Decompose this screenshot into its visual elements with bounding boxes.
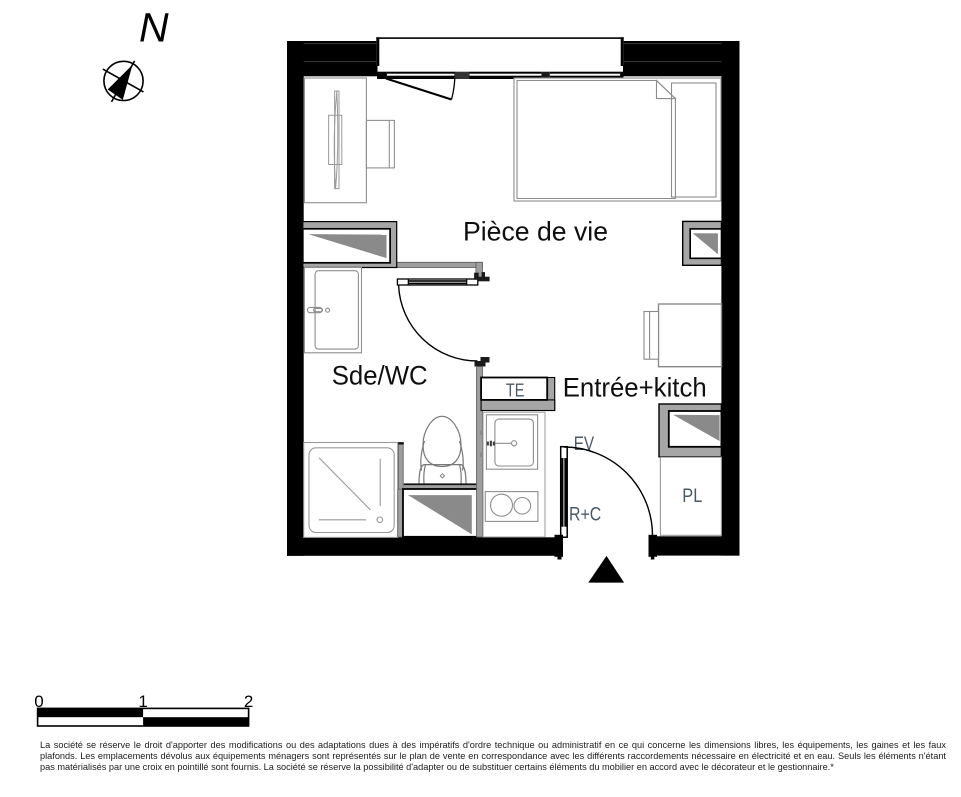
svg-text:Entrée+kitch: Entrée+kitch — [563, 373, 707, 403]
svg-text:1: 1 — [138, 692, 147, 711]
svg-text:TE: TE — [506, 380, 525, 401]
svg-text:PL: PL — [682, 486, 702, 507]
svg-text:Pièce de vie: Pièce de vie — [463, 217, 608, 247]
svg-text:0: 0 — [34, 692, 43, 711]
svg-text:2: 2 — [244, 692, 253, 711]
svg-text:Sde/WC: Sde/WC — [332, 361, 428, 391]
svg-text:R+C: R+C — [569, 504, 601, 525]
svg-text:N: N — [139, 5, 169, 51]
